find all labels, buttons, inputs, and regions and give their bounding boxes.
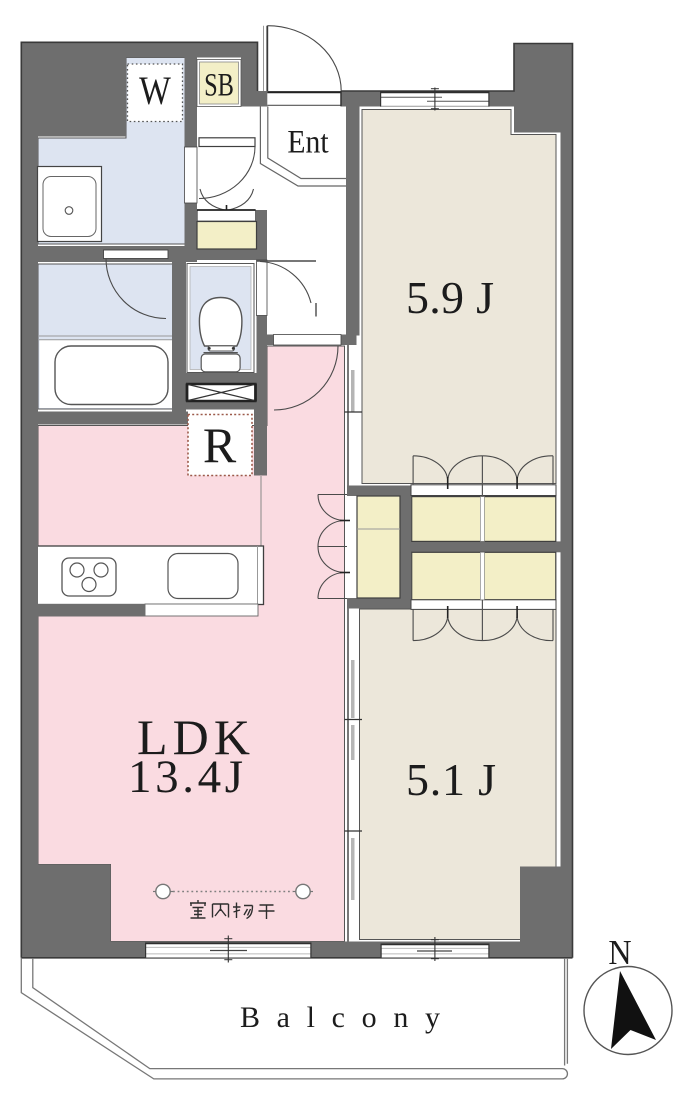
svg-text:5.1 J: 5.1 J — [406, 754, 496, 805]
svg-text:W: W — [139, 68, 171, 112]
svg-text:R: R — [203, 417, 237, 473]
svg-text:Ent: Ent — [287, 123, 328, 160]
svg-text:5.9 J: 5.9 J — [406, 272, 494, 323]
svg-text:N: N — [608, 934, 631, 973]
svg-text:SB: SB — [204, 67, 234, 103]
svg-text:13.4J: 13.4J — [128, 751, 243, 803]
